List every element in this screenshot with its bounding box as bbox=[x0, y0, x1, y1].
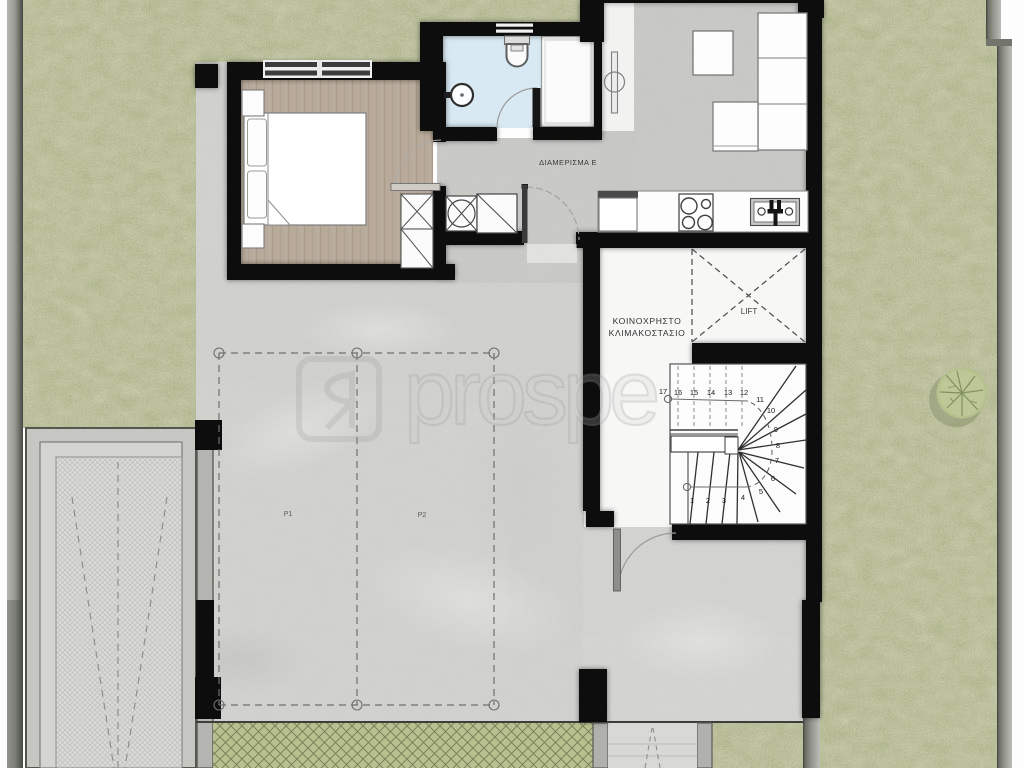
svg-text:8: 8 bbox=[776, 441, 780, 450]
svg-text:9: 9 bbox=[774, 425, 778, 434]
svg-text:LIFT: LIFT bbox=[741, 307, 758, 316]
svg-text:5: 5 bbox=[759, 487, 763, 496]
svg-text:6: 6 bbox=[771, 474, 775, 483]
svg-text:4: 4 bbox=[741, 493, 745, 502]
svg-text:1: 1 bbox=[690, 496, 694, 505]
svg-text:prospe: prospe bbox=[404, 342, 657, 444]
svg-text:17: 17 bbox=[659, 387, 667, 396]
svg-text:ΚΛΙΜΑΚΟΣΤΑΣΙΟ: ΚΛΙΜΑΚΟΣΤΑΣΙΟ bbox=[609, 328, 686, 338]
svg-text:P1: P1 bbox=[284, 511, 293, 518]
svg-text:10: 10 bbox=[767, 406, 775, 415]
svg-text:11: 11 bbox=[756, 395, 764, 404]
svg-text:ΚΟΙΝΟΧΡΗΣΤΟ: ΚΟΙΝΟΧΡΗΣΤΟ bbox=[613, 316, 682, 326]
svg-text:13: 13 bbox=[724, 388, 732, 397]
svg-text:ΔΙΑΜΕΡΙΣΜΑ Ε: ΔΙΑΜΕΡΙΣΜΑ Ε bbox=[539, 158, 597, 167]
svg-text:3: 3 bbox=[722, 496, 726, 505]
svg-text:15: 15 bbox=[690, 388, 698, 397]
svg-text:P2: P2 bbox=[418, 512, 427, 519]
svg-text:2: 2 bbox=[706, 496, 710, 505]
svg-text:16: 16 bbox=[674, 388, 682, 397]
svg-text:7: 7 bbox=[775, 456, 779, 465]
svg-text:14: 14 bbox=[707, 388, 715, 397]
svg-text:12: 12 bbox=[740, 388, 748, 397]
